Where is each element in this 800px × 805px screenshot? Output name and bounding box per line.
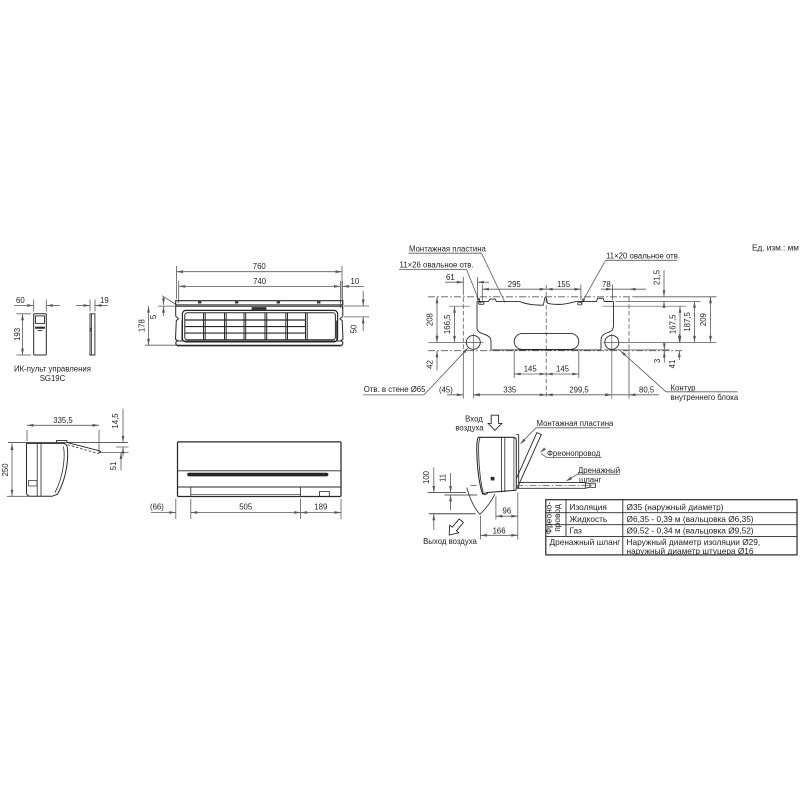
svg-text:14,5: 14,5 [111, 413, 120, 429]
svg-text:Газ: Газ [570, 525, 583, 535]
svg-text:208: 208 [426, 313, 435, 326]
svg-text:11×26 овальное отв.: 11×26 овальное отв. [400, 260, 474, 269]
svg-text:шланг: шланг [579, 476, 601, 485]
svg-text:наружный диаметр штуцера Ø16: наружный диаметр штуцера Ø16 [627, 546, 754, 556]
svg-text:299,5: 299,5 [569, 385, 589, 394]
svg-text:209: 209 [699, 313, 708, 326]
svg-text:41: 41 [668, 360, 677, 369]
svg-text:Ø9,52 - 0,34 м (вальцовка Ø9,5: Ø9,52 - 0,34 м (вальцовка Ø9,52) [627, 525, 754, 535]
svg-text:Дренажный: Дренажный [578, 466, 620, 475]
svg-text:(66): (66) [150, 502, 164, 511]
svg-text:760: 760 [253, 262, 267, 271]
svg-text:Монтажная пластина: Монтажная пластина [409, 244, 487, 253]
svg-text:Ø6,35 - 0,39 м (вальцовка Ø6,: Ø6,35 - 0,39 м (вальцовка Ø6,35) [627, 514, 754, 524]
svg-text:166,5: 166,5 [443, 314, 452, 334]
svg-text:провод: провод [552, 504, 562, 532]
svg-text:335,5: 335,5 [53, 416, 73, 425]
svg-text:10: 10 [351, 277, 360, 286]
svg-text:внутреннего блока: внутреннего блока [671, 393, 739, 402]
svg-text:193: 193 [13, 328, 22, 341]
svg-text:19: 19 [100, 296, 109, 305]
svg-text:Фреонопровод: Фреонопровод [547, 449, 601, 458]
svg-text:740: 740 [253, 277, 267, 286]
svg-text:155: 155 [557, 280, 571, 289]
svg-text:189: 189 [314, 502, 327, 511]
svg-text:145: 145 [524, 365, 538, 374]
svg-text:145: 145 [556, 365, 570, 374]
svg-text:21,5: 21,5 [653, 269, 662, 285]
svg-text:Ø35 (наружный диаметр): Ø35 (наружный диаметр) [627, 502, 724, 512]
svg-text:42: 42 [426, 360, 435, 369]
svg-text:Дренажный шланг: Дренажный шланг [550, 537, 621, 547]
svg-text:167,5: 167,5 [669, 314, 678, 334]
svg-text:61: 61 [446, 273, 455, 282]
svg-text:78: 78 [602, 280, 611, 289]
svg-text:178: 178 [138, 319, 147, 332]
svg-text:80,5: 80,5 [639, 385, 655, 394]
svg-text:11: 11 [439, 474, 448, 482]
svg-text:Жидкость: Жидкость [570, 514, 608, 524]
svg-text:5: 5 [149, 314, 158, 319]
svg-text:505: 505 [239, 502, 253, 511]
svg-text:295: 295 [508, 280, 522, 289]
svg-text:воздуха: воздуха [455, 423, 484, 432]
svg-text:51: 51 [109, 462, 118, 471]
svg-text:Отв. в стене Ø65: Отв. в стене Ø65 [364, 385, 426, 394]
svg-text:Вход: Вход [465, 414, 483, 423]
svg-text:3: 3 [653, 359, 662, 363]
svg-text:250: 250 [1, 463, 10, 477]
svg-text:Контур: Контур [671, 383, 697, 392]
svg-text:Ед. изм.: мм: Ед. изм.: мм [752, 243, 799, 252]
svg-text:335: 335 [503, 385, 517, 394]
svg-text:187,5: 187,5 [683, 311, 692, 331]
svg-text:Изоляция: Изоляция [570, 502, 607, 512]
svg-text:100: 100 [422, 470, 431, 484]
svg-text:166: 166 [493, 526, 506, 535]
svg-text:96: 96 [503, 507, 512, 516]
svg-text:Монтажная пластина: Монтажная пластина [537, 419, 615, 428]
svg-text:ИК-пульт управления: ИК-пульт управления [14, 365, 91, 374]
svg-text:(45): (45) [439, 385, 453, 394]
svg-text:60: 60 [16, 296, 25, 305]
svg-text:50: 50 [350, 324, 359, 333]
svg-text:SG19C: SG19C [40, 374, 66, 383]
svg-text:11×20 овальное отв.: 11×20 овальное отв. [606, 251, 680, 260]
svg-text:Выход воздуха: Выход воздуха [423, 537, 477, 546]
